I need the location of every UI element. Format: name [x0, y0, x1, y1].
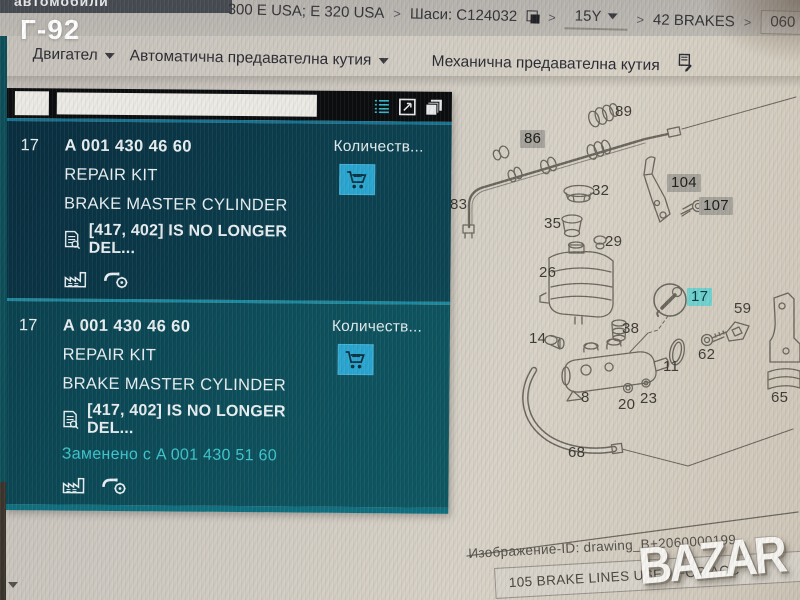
parts-panel: 17 A 001 430 46 60 REPAIR KIT BRAKE MAST…	[3, 88, 452, 514]
diagram-callout-8[interactable]: 8	[581, 389, 590, 407]
caret-down-icon	[105, 53, 115, 59]
part-position: 17	[20, 134, 64, 156]
menu-engine[interactable]: Двигател	[33, 46, 115, 66]
caret-down-icon	[378, 58, 388, 64]
part-number: A 001 430 46 60	[63, 314, 191, 337]
diagram-callout-107[interactable]: 107	[699, 197, 733, 215]
breadcrumb-subgroup[interactable]: 060 BRAKE BOOSTER	[760, 10, 800, 38]
part-list-item[interactable]: 17 A 001 430 46 60 REPAIR KIT BRAKE MAST…	[5, 121, 452, 302]
breadcrumb-separator: >	[636, 11, 644, 26]
breadcrumb-separator: >	[744, 14, 752, 29]
diagram-callout-23[interactable]: 23	[640, 390, 657, 408]
diagram-callout-29[interactable]: 29	[605, 233, 622, 251]
factory-option-icon[interactable]	[63, 269, 87, 288]
menu-automatic-transmission[interactable]: Автоматична предавателна кутия	[130, 47, 389, 70]
part-footnote: [417, 402] IS NO LONGER DEL...	[87, 402, 331, 440]
parts-search-input[interactable]	[57, 92, 317, 116]
position-filter-input[interactable]	[15, 91, 49, 115]
diagram-callout-68[interactable]: 68	[568, 444, 585, 462]
menu-automatic-transmission-label: Автоматична предавателна кутия	[130, 47, 372, 69]
breadcrumb-separator: >	[548, 9, 556, 24]
diagram-callout-59[interactable]: 59	[734, 300, 751, 318]
breadcrumb-year-dropdown[interactable]: 15Y	[564, 6, 627, 31]
breadcrumb-group[interactable]: 42 BRAKES	[653, 11, 735, 30]
part-name: REPAIR KIT	[63, 343, 332, 367]
diagram-callout-62[interactable]: 62	[698, 346, 715, 364]
diagram-callout-86[interactable]: 86	[520, 130, 545, 148]
part-description: BRAKE MASTER CYLINDER	[62, 372, 331, 396]
duplicate-pages-icon[interactable]	[425, 98, 444, 115]
footnote-document-icon[interactable]	[64, 230, 81, 249]
parts-panel-toolbar	[7, 88, 452, 122]
breadcrumb-tab-vehicles[interactable]: автомобили	[0, 0, 232, 13]
menu-manual-transmission[interactable]: Механична предавателна кутия	[431, 53, 659, 75]
part-description: BRAKE MASTER CYLINDER	[64, 193, 333, 217]
diagram-callout-11[interactable]: 11	[663, 358, 679, 376]
photo-edge-strip	[0, 482, 6, 600]
diagram-callout-14[interactable]: 14	[529, 330, 546, 348]
pipe-parts-icon[interactable]	[103, 269, 129, 288]
diagram-callout-35[interactable]: 35	[544, 215, 561, 233]
expand-view-icon[interactable]	[399, 98, 416, 115]
diagram-callout-65[interactable]: 65	[771, 389, 788, 407]
part-position: 17	[19, 314, 63, 336]
factory-option-icon[interactable]	[61, 475, 85, 494]
photo-sticker-label: Г-92	[20, 14, 80, 46]
photo-edge-strip	[0, 36, 7, 482]
part-list-item[interactable]: 17 A 001 430 46 60 REPAIR KIT BRAKE MAST…	[3, 301, 450, 508]
footnote-document-icon[interactable]	[62, 410, 79, 429]
part-replacement-note: Заменено с A 001 430 51 60	[62, 445, 331, 465]
breadcrumb-model[interactable]: 300 E USA; E 320 USA	[227, 0, 384, 21]
part-footnote: [417, 402] IS NO LONGER DEL...	[89, 222, 333, 260]
diagram-callout-17[interactable]: 17	[687, 288, 712, 306]
list-view-icon[interactable]	[374, 98, 390, 114]
part-number: A 001 430 46 60	[64, 135, 192, 158]
breadcrumb: автомобили 300 E USA; E 320 USA > Шаси: …	[0, 0, 800, 36]
add-to-cart-button[interactable]	[339, 164, 375, 195]
diagram-callout-89[interactable]: 89	[615, 103, 632, 121]
quantity-column-header: Количеств...	[332, 318, 440, 337]
add-to-cart-button[interactable]	[338, 344, 374, 375]
pipe-parts-icon[interactable]	[101, 475, 127, 494]
caret-down-icon	[607, 13, 617, 19]
breadcrumb-tab-label: автомобили	[14, 0, 232, 9]
part-name: REPAIR KIT	[64, 164, 333, 188]
diagram-callout-26[interactable]: 26	[539, 264, 556, 282]
copy-pages-icon[interactable]	[526, 10, 539, 23]
quantity-column-header: Количеств...	[333, 138, 441, 157]
scroll-down-arrow-icon	[8, 582, 18, 588]
diagram-callout-38[interactable]: 38	[622, 320, 639, 338]
diagram-callout-32[interactable]: 32	[592, 182, 609, 200]
menu-manual-transmission-label: Механична предавателна кутия	[431, 53, 659, 75]
diagram-callout-83[interactable]: 83	[450, 196, 467, 214]
menu-engine-label: Двигател	[33, 46, 98, 65]
notes-icon[interactable]	[678, 53, 694, 71]
diagram-callout-20[interactable]: 20	[618, 396, 635, 414]
diagram-callout-104[interactable]: 104	[667, 174, 701, 192]
breadcrumb-year-label: 15Y	[575, 7, 602, 25]
breadcrumb-chassis[interactable]: Шаси: C124032	[410, 5, 518, 25]
breadcrumb-separator: >	[393, 6, 401, 21]
photo-watermark: BAZAR	[636, 523, 787, 596]
